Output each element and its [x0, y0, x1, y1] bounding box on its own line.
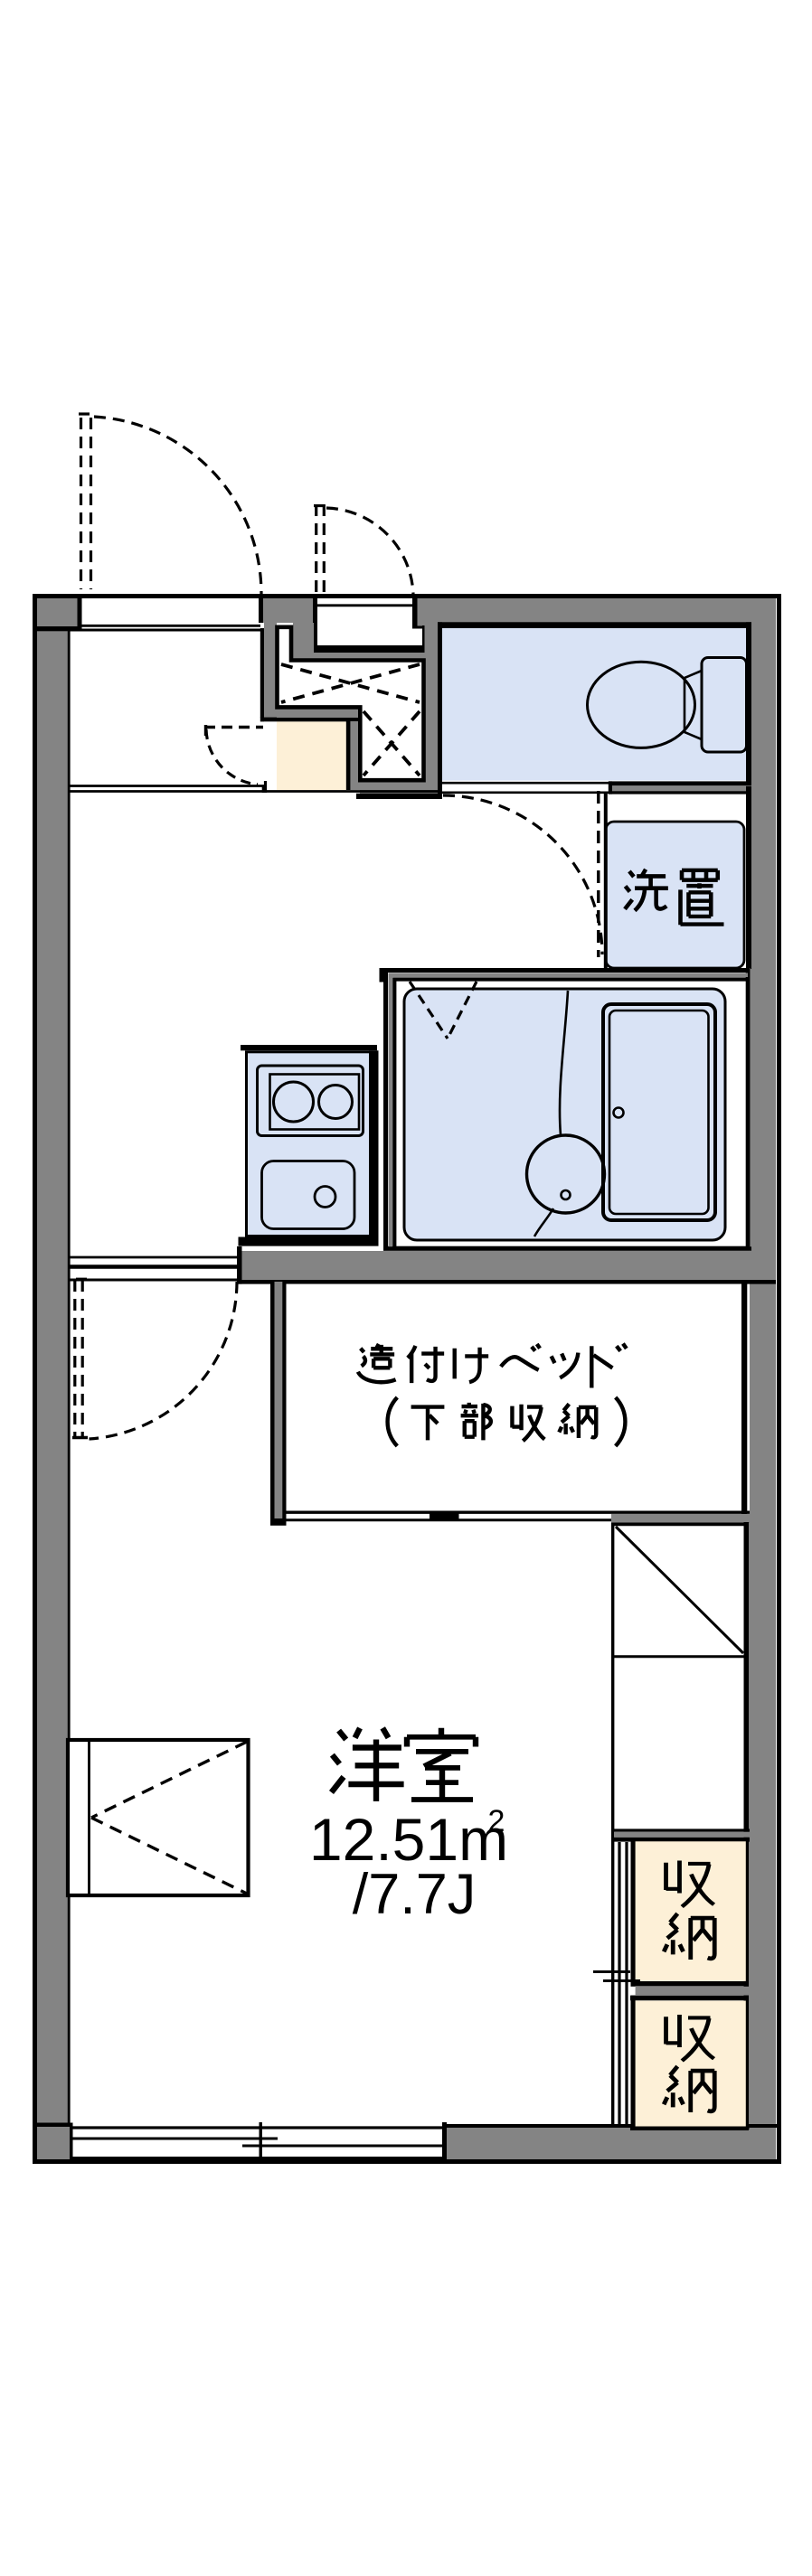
svg-text:/7.7J: /7.7J [353, 1863, 477, 1926]
svg-text:2: 2 [488, 1804, 505, 1838]
